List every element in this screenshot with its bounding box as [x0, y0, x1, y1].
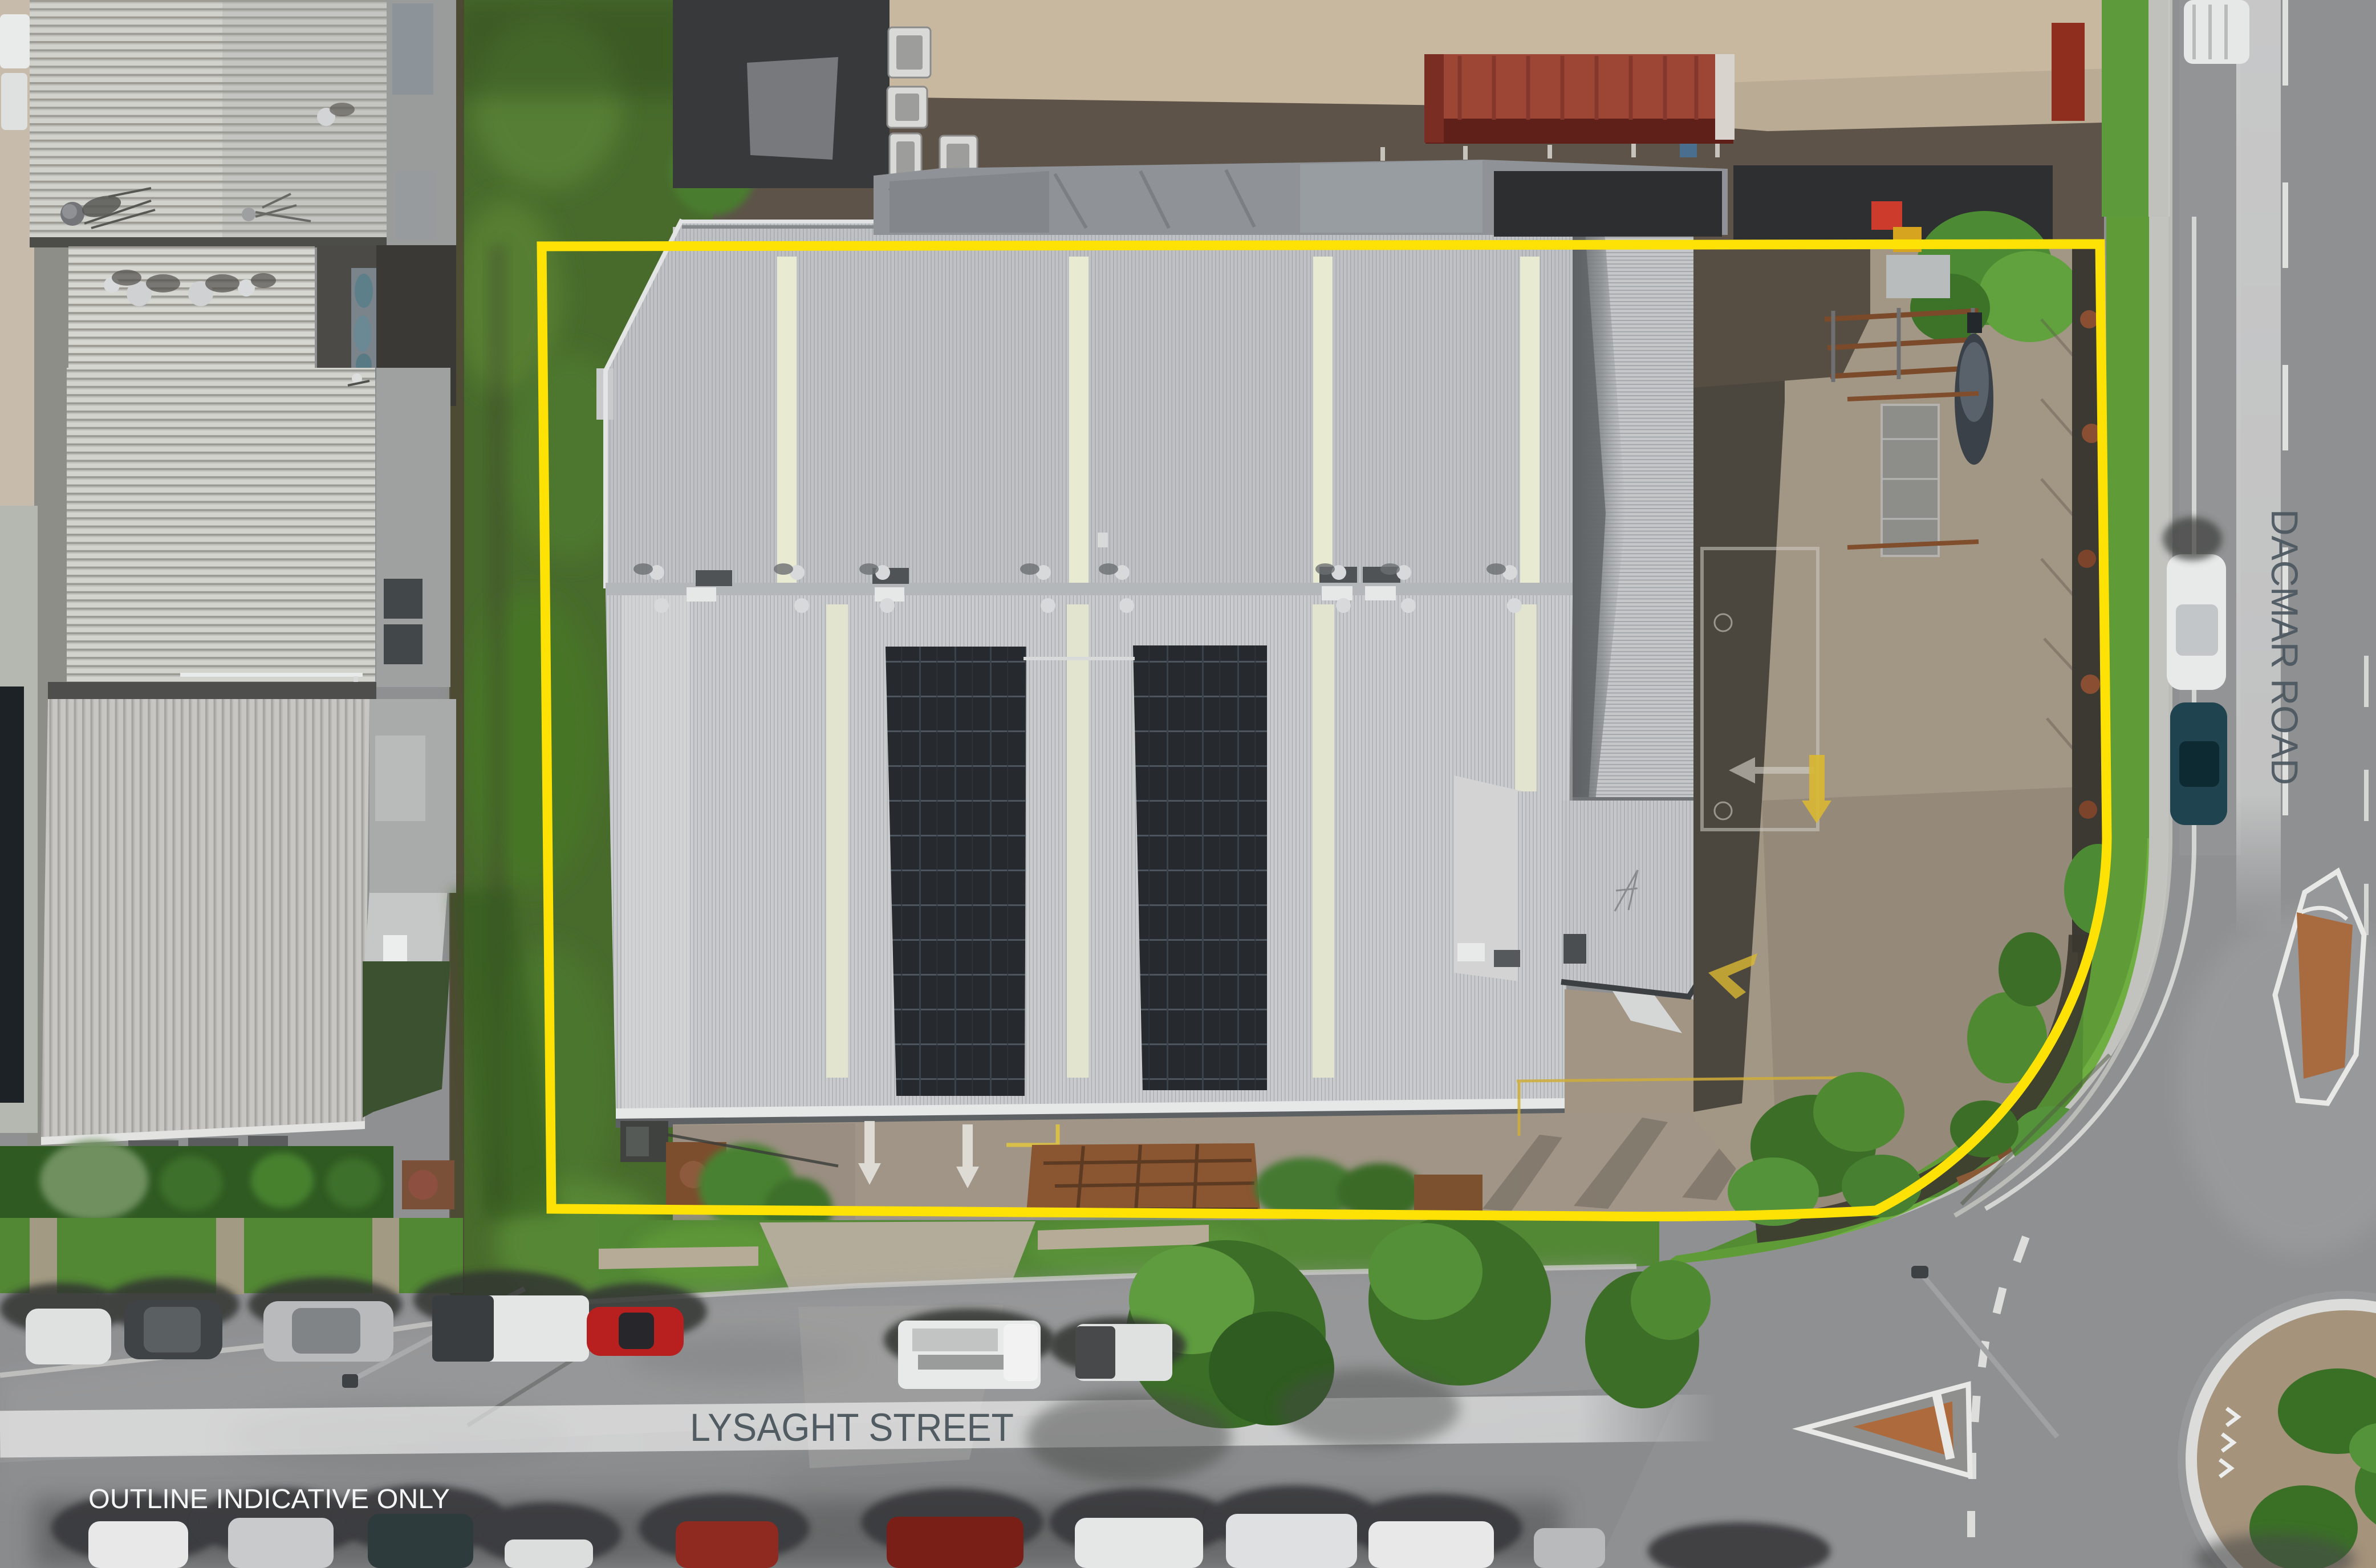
svg-text:OUTLINE INDICATIVE ONLY: OUTLINE INDICATIVE ONLY	[88, 1484, 450, 1514]
svg-text:LYSAGHT STREET: LYSAGHT STREET	[690, 1405, 1014, 1449]
svg-text:DACMAR ROAD: DACMAR ROAD	[2264, 509, 2306, 785]
